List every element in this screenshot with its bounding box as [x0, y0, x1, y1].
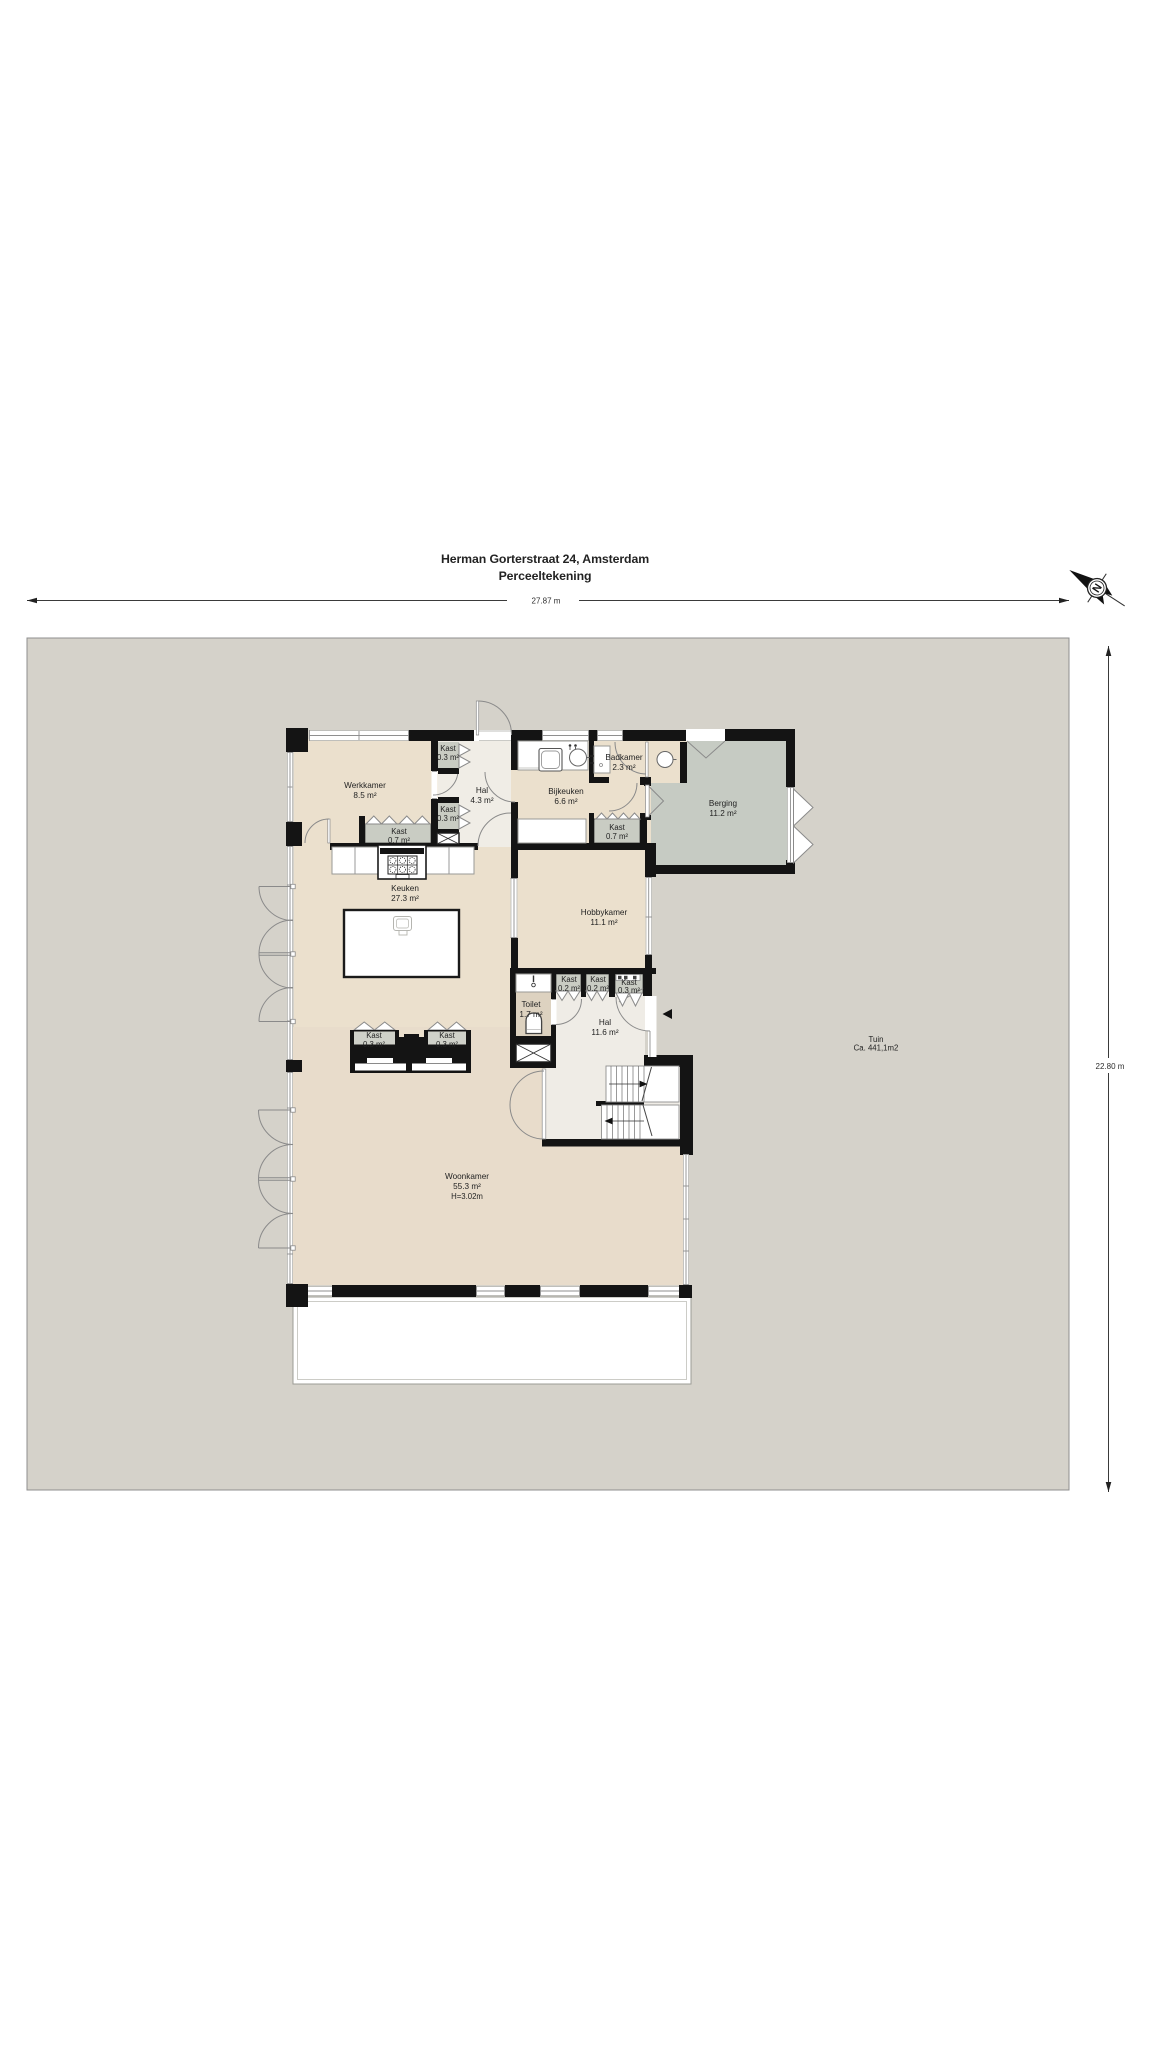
svg-text:11.2 m²: 11.2 m² [709, 809, 736, 818]
svg-text:8.5 m²: 8.5 m² [353, 791, 376, 800]
svg-text:H=3.02m: H=3.02m [451, 1192, 483, 1201]
svg-text:Hal: Hal [599, 1018, 611, 1027]
svg-text:0.3 m²: 0.3 m² [436, 1040, 458, 1049]
svg-text:Keuken: Keuken [391, 884, 419, 893]
svg-text:Kast: Kast [609, 823, 625, 832]
svg-text:Kast: Kast [366, 1031, 382, 1040]
svg-text:Kast: Kast [440, 744, 456, 753]
svg-text:Hobbykamer: Hobbykamer [581, 908, 628, 917]
svg-text:2.3 m²: 2.3 m² [612, 763, 635, 772]
svg-text:11.6 m²: 11.6 m² [591, 1028, 618, 1037]
svg-text:Perceeltekening: Perceeltekening [499, 569, 592, 583]
svg-text:Kast: Kast [439, 1031, 455, 1040]
svg-text:Kast: Kast [590, 975, 606, 984]
svg-text:0.3 m²: 0.3 m² [363, 1040, 385, 1049]
svg-text:Herman Gorterstraat 24, Amster: Herman Gorterstraat 24, Amsterdam [441, 552, 649, 566]
svg-text:Berging: Berging [709, 799, 738, 808]
svg-text:Badkamer: Badkamer [605, 753, 643, 762]
svg-text:4.3 m²: 4.3 m² [470, 796, 493, 805]
svg-text:Kast: Kast [440, 805, 456, 814]
svg-text:Ca. 441,1m2: Ca. 441,1m2 [854, 1044, 899, 1053]
svg-text:Bijkeuken: Bijkeuken [548, 787, 584, 796]
svg-text:0.3 m²: 0.3 m² [437, 753, 459, 762]
svg-text:1.7 m²: 1.7 m² [519, 1010, 542, 1019]
svg-text:27.87 m: 27.87 m [532, 597, 561, 606]
svg-text:22.80 m: 22.80 m [1096, 1062, 1125, 1071]
svg-text:0.3 m²: 0.3 m² [437, 814, 459, 823]
svg-text:0.7 m²: 0.7 m² [388, 836, 410, 845]
svg-text:Toilet: Toilet [521, 1000, 541, 1009]
svg-text:Werkkamer: Werkkamer [344, 781, 386, 790]
svg-text:0.7 m²: 0.7 m² [606, 832, 628, 841]
svg-text:Woonkamer: Woonkamer [445, 1172, 489, 1181]
svg-text:Hal: Hal [476, 786, 488, 795]
svg-text:11.1 m²: 11.1 m² [590, 918, 617, 927]
svg-text:27.3 m²: 27.3 m² [391, 894, 419, 903]
svg-text:0.2 m²: 0.2 m² [587, 984, 609, 993]
svg-text:55.3 m²: 55.3 m² [453, 1182, 481, 1191]
svg-text:6.6 m²: 6.6 m² [554, 797, 577, 806]
svg-text:0.3 m²: 0.3 m² [618, 986, 640, 995]
svg-text:Kast: Kast [561, 975, 577, 984]
svg-text:Kast: Kast [391, 827, 407, 836]
svg-text:0.2 m²: 0.2 m² [558, 984, 580, 993]
